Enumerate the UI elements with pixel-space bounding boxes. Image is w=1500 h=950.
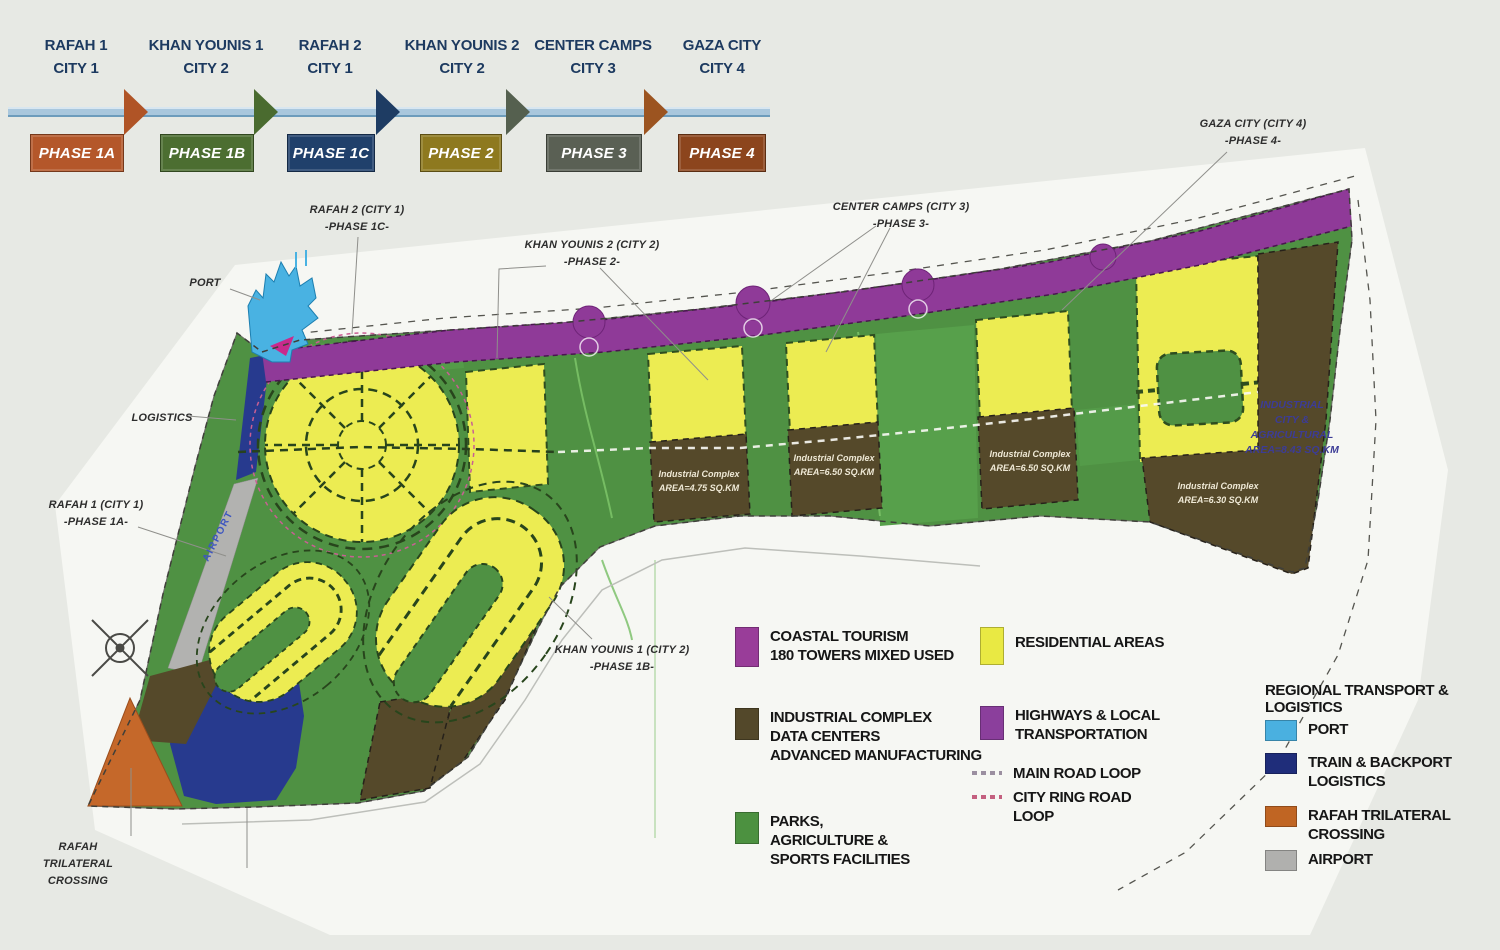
svg-text:-PHASE 1B-: -PHASE 1B-	[590, 661, 654, 673]
legend-item-parks: PARKS, AGRICULTURE & SPORTS FACILITIES	[735, 812, 910, 869]
svg-text:-PHASE 3-: -PHASE 3-	[873, 218, 929, 230]
svg-text:Industrial Complex: Industrial Complex	[1177, 481, 1259, 491]
train-swatch	[1265, 753, 1297, 774]
legend-item-ring-road: CITY RING ROAD LOOP	[972, 788, 1131, 826]
phase-1b-badge: PHASE 1B	[160, 134, 254, 172]
svg-text:AREA=8.43 SQ.KM: AREA=8.43 SQ.KM	[1244, 444, 1339, 456]
svg-text:-PHASE 1A-: -PHASE 1A-	[64, 516, 128, 528]
svg-text:TRILATERAL: TRILATERAL	[43, 858, 113, 870]
phase-2-badge: PHASE 2	[420, 134, 502, 172]
svg-text:CITY &: CITY &	[1275, 414, 1309, 426]
khanyounis1-label: KHAN YOUNIS 1 (CITY 2)	[555, 644, 690, 656]
highways-swatch	[980, 706, 1004, 740]
industrial-swatch	[735, 708, 759, 740]
phase-4-badge: PHASE 4	[678, 134, 766, 172]
logistics-label: LOGISTICS	[131, 412, 193, 424]
svg-text:AREA=4.75 SQ.KM: AREA=4.75 SQ.KM	[658, 483, 740, 493]
legend-item-industrial: INDUSTRIAL COMPLEX DATA CENTERS ADVANCED…	[735, 708, 982, 765]
legend-item-highways: HIGHWAYS & LOCAL TRANSPORTATION	[980, 706, 1160, 744]
legend-item-main-road: MAIN ROAD LOOP	[972, 764, 1141, 783]
parks-swatch	[735, 812, 759, 844]
residential-swatch	[980, 627, 1004, 665]
rafah1-label: RAFAH 1 (CITY 1)	[49, 499, 144, 511]
ring-road-dash-icon	[972, 795, 1002, 799]
phase-1c-badge: PHASE 1C	[287, 134, 375, 172]
legend-item-train: TRAIN & BACKPORT LOGISTICS	[1265, 753, 1452, 791]
svg-text:Industrial Complex: Industrial Complex	[793, 453, 875, 463]
svg-text:Industrial Complex: Industrial Complex	[658, 469, 740, 479]
rafah2-label: RAFAH 2 (CITY 1)	[310, 204, 405, 216]
gazacity-label: GAZA CITY (CITY 4)	[1200, 118, 1307, 130]
svg-text:Industrial Complex: Industrial Complex	[989, 449, 1071, 459]
gaza-green-core	[1156, 350, 1244, 426]
legend-item-port: PORT	[1265, 720, 1348, 741]
legend-item-coastal: COASTAL TOURISM 180 TOWERS MIXED USED	[735, 627, 954, 667]
legend-item-crossing: RAFAH TRILATERAL CROSSING	[1265, 806, 1450, 844]
masterplan-slide: PORT LOGISTICS RAFAH 1 (CITY 1) -PHASE 1…	[0, 0, 1500, 950]
phase-1a-badge: PHASE 1A	[30, 134, 124, 172]
svg-text:-PHASE 2-: -PHASE 2-	[564, 256, 620, 268]
coastal-swatch	[735, 627, 759, 667]
centercamps-label: CENTER CAMPS (CITY 3)	[833, 201, 970, 213]
svg-text:AREA=6.30 SQ.KM: AREA=6.30 SQ.KM	[1177, 495, 1259, 505]
airport-swatch	[1265, 850, 1297, 871]
timeline-city-5: GAZA CITYCITY 4	[642, 34, 802, 80]
legend-item-airport: AIRPORT	[1265, 850, 1373, 871]
svg-text:AREA=6.50 SQ.KM: AREA=6.50 SQ.KM	[989, 463, 1071, 473]
svg-text:CROSSING: CROSSING	[48, 875, 109, 887]
svg-text:-PHASE 1C-: -PHASE 1C-	[325, 221, 389, 233]
crossing-label: RAFAH	[59, 841, 99, 853]
svg-text:AGRICULTURAL: AGRICULTURAL	[1250, 429, 1334, 441]
khanyounis2-label: KHAN YOUNIS 2 (CITY 2)	[525, 239, 660, 251]
transport-legend-title: REGIONAL TRANSPORT & LOGISTICS	[1265, 682, 1500, 716]
main-road-dash-icon	[972, 771, 1002, 775]
port-swatch	[1265, 720, 1297, 741]
svg-text:AREA=6.50 SQ.KM: AREA=6.50 SQ.KM	[793, 467, 875, 477]
phase-3-badge: PHASE 3	[546, 134, 642, 172]
port-label: PORT	[189, 277, 221, 289]
svg-text:-PHASE 4-: -PHASE 4-	[1225, 135, 1281, 147]
crossing-swatch	[1265, 806, 1297, 827]
svg-text:INDUSTRIAL: INDUSTRIAL	[1260, 399, 1324, 411]
legend-item-residential: RESIDENTIAL AREAS	[980, 627, 1164, 665]
